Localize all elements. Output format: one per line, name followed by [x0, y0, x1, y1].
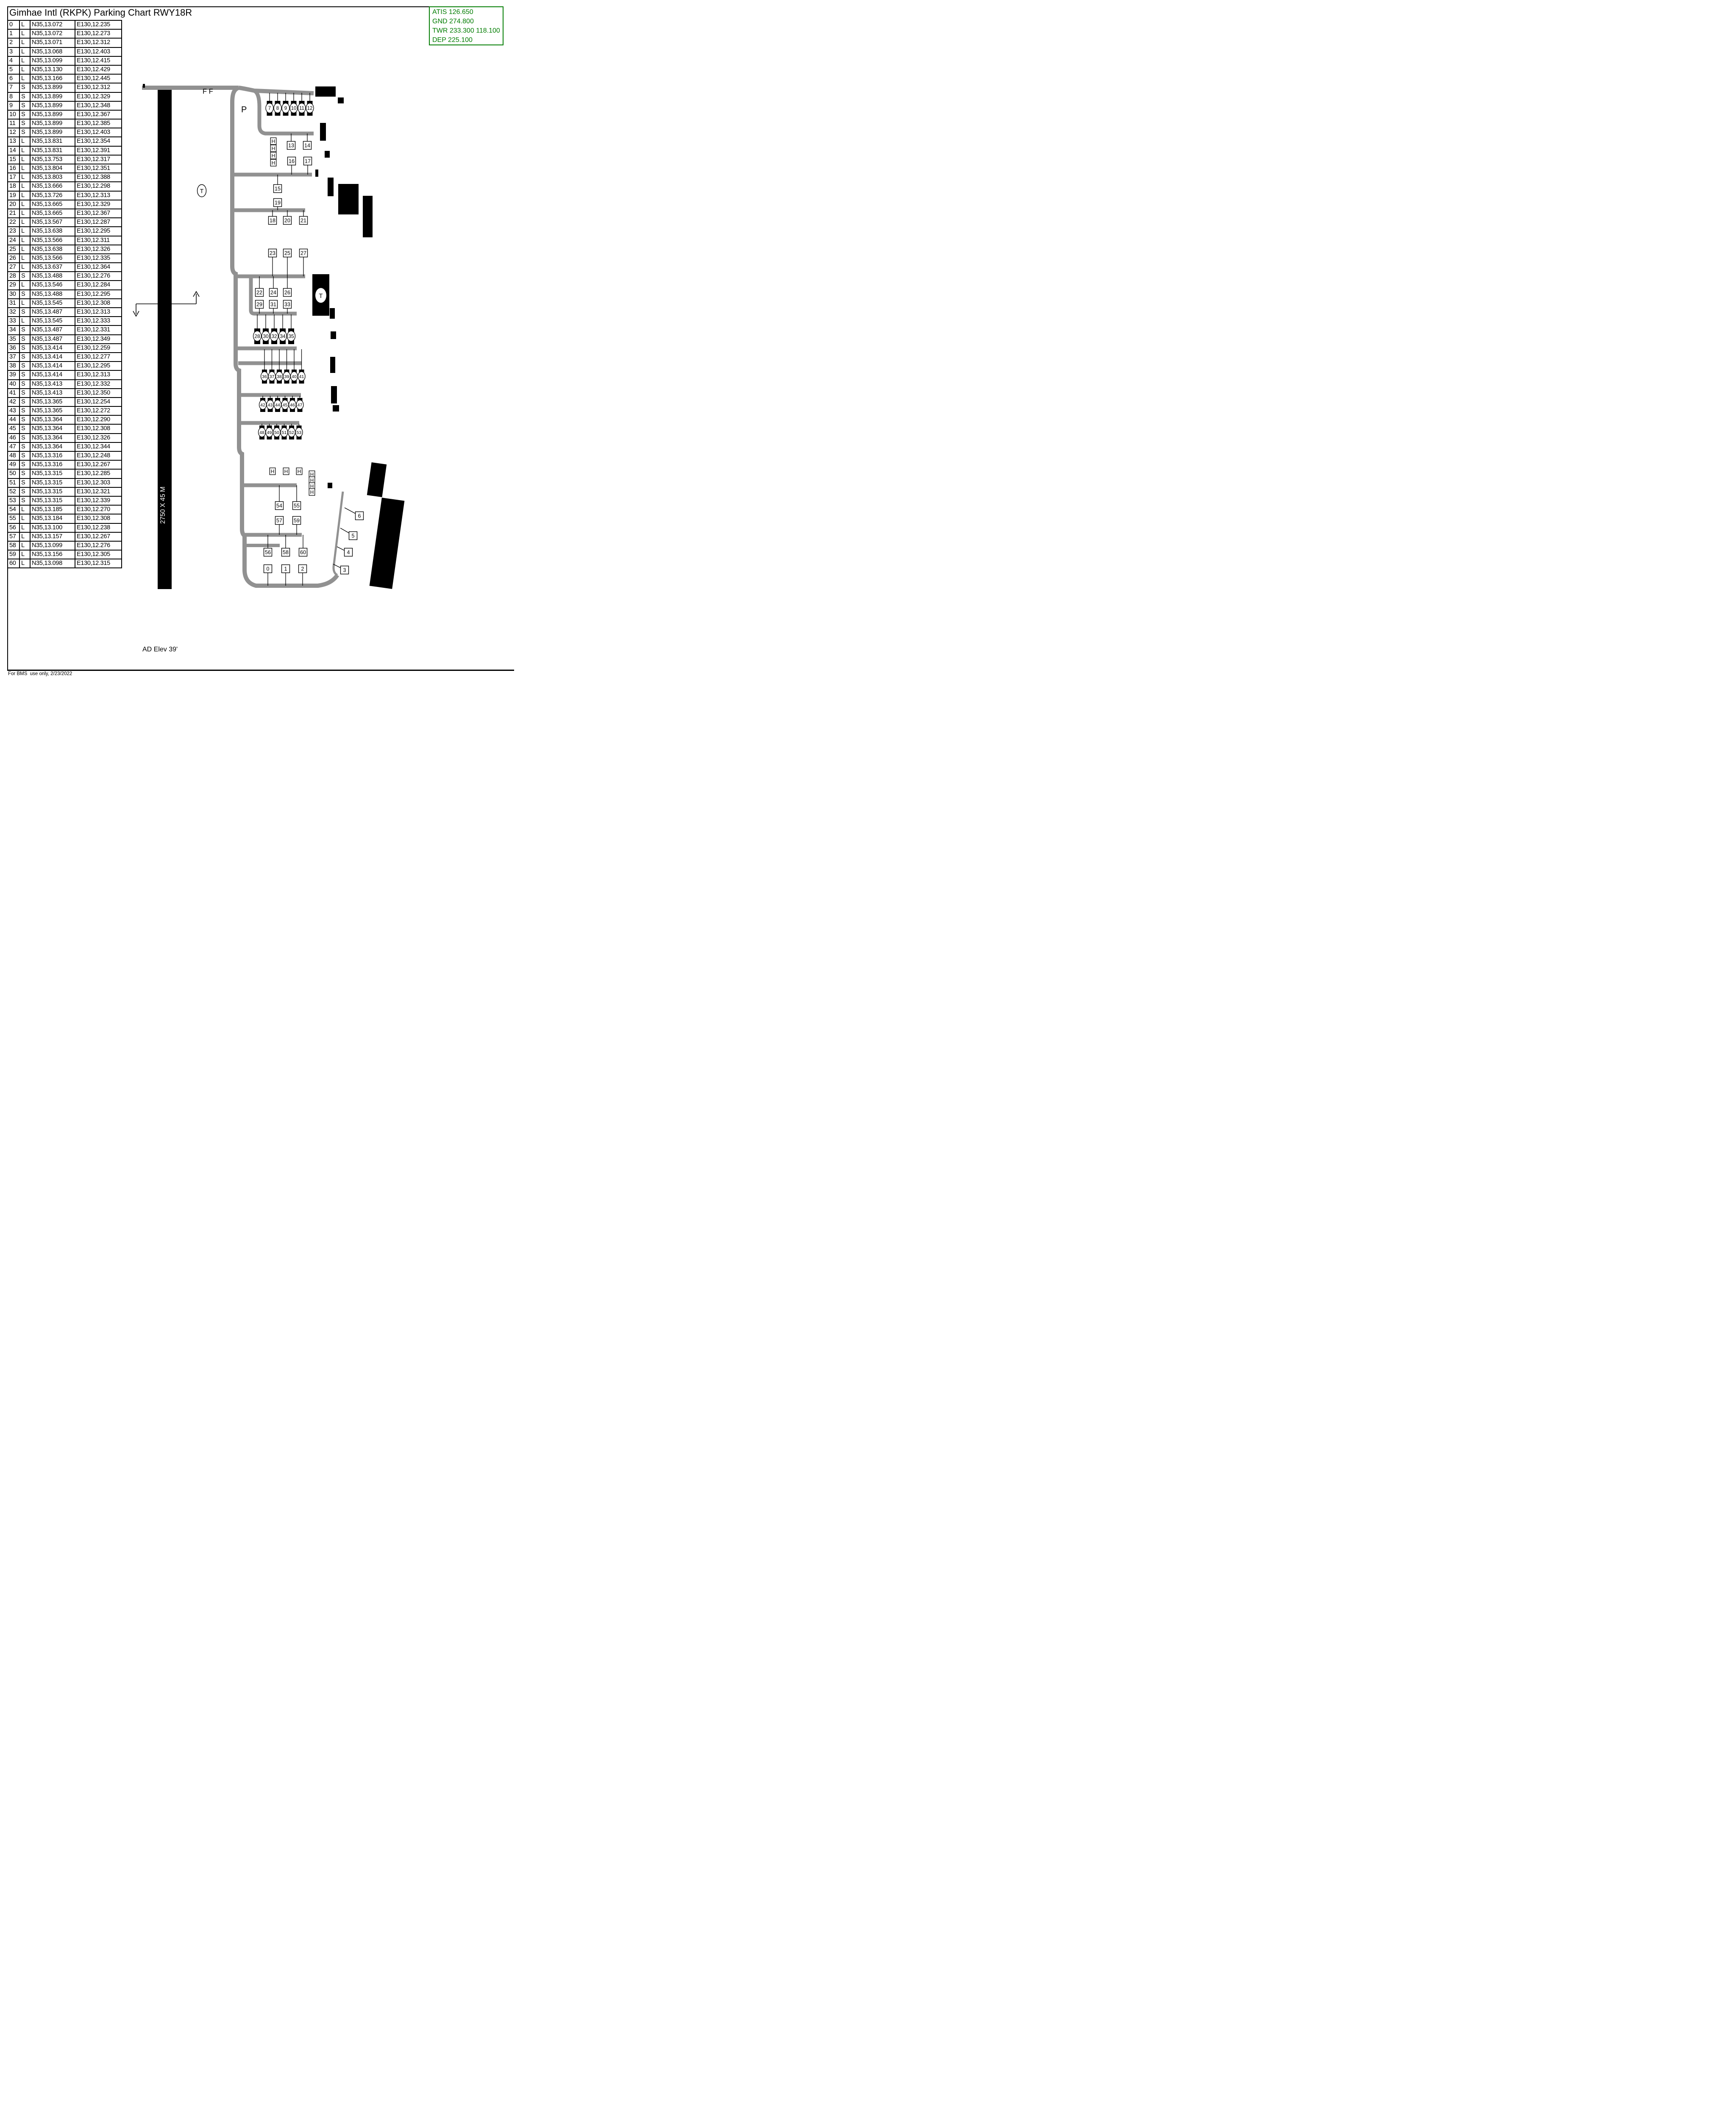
stand-box-label: 17 — [305, 159, 311, 164]
stand-circle-label: 36 — [262, 374, 267, 379]
stand-box-label: 16 — [289, 159, 295, 164]
stand-box-label: 3 — [343, 567, 346, 573]
taxiway-tick — [143, 84, 145, 88]
taxiway-f-label: F F — [203, 88, 213, 95]
helipad-label: H — [272, 160, 275, 166]
stand-circle-label: 53 — [297, 430, 302, 435]
building — [370, 498, 405, 589]
stand-box-label: 24 — [270, 290, 276, 296]
stand-box-label: 23 — [270, 250, 275, 256]
runway-dimensions-label: 2750 X 45 M — [159, 487, 167, 524]
stand-circle-label: 47 — [298, 403, 303, 408]
helipad-label: H — [310, 483, 314, 489]
helipad-label: H — [272, 138, 275, 144]
parking-chart-page: Gimhae Intl (RKPK) Parking Chart RWY18R … — [0, 0, 521, 677]
stand-circle-label: 34 — [280, 333, 286, 339]
stand-circle-label: 30 — [263, 333, 269, 339]
stand-box-label: 59 — [294, 518, 300, 524]
stand-box-label: 1 — [284, 566, 287, 572]
stand-box-label: 56 — [265, 550, 271, 556]
stand-box-label: 33 — [284, 302, 290, 308]
stand-box-label: 15 — [275, 186, 281, 192]
stand-box-label: 0 — [267, 566, 270, 572]
stand-box-label: 54 — [276, 503, 282, 509]
stand-box-label: 60 — [300, 550, 306, 556]
helipad-label: H — [298, 468, 301, 474]
stand-box-label: 13 — [288, 143, 294, 149]
stand-circle-label: 35 — [288, 333, 294, 339]
stand-box-label: 19 — [275, 200, 281, 206]
terminal-label-left: T — [200, 188, 204, 195]
stand-box-label: 55 — [294, 503, 300, 509]
diagonal-taxiway — [334, 492, 343, 575]
stand-leader — [340, 528, 349, 533]
stand-circle-label: 11 — [299, 106, 304, 111]
stand-circle-label: 10 — [291, 106, 297, 111]
stand-circle-label: 7 — [268, 106, 271, 111]
stand-box-label: 14 — [304, 143, 310, 149]
building — [331, 386, 337, 403]
stand-box-label: 31 — [270, 302, 276, 308]
helipad-label: H — [271, 468, 275, 474]
stand-circle-label: 41 — [299, 374, 304, 379]
stand-circle-label: 44 — [275, 403, 280, 408]
building — [367, 462, 387, 497]
footer-note: For BMS use only, 2/23/2022 — [8, 671, 72, 676]
stand-leader — [337, 547, 345, 551]
helipad-label: H — [272, 153, 275, 159]
stand-circle-label: 46 — [290, 403, 295, 408]
airport-diagram: 7891011122830323435363738394041424344454… — [0, 0, 521, 677]
building — [330, 308, 335, 319]
helipad-label: H — [272, 145, 275, 151]
building — [328, 483, 332, 488]
building — [325, 151, 330, 158]
stand-box-label: 21 — [300, 218, 306, 224]
stand-circle-label: 12 — [307, 106, 313, 111]
terminal-label-right: T — [319, 292, 323, 300]
stand-circle-label: 39 — [284, 374, 289, 379]
building — [328, 178, 334, 196]
stand-box-label: 58 — [283, 550, 289, 556]
building — [338, 184, 359, 214]
stand-circle-label: 42 — [260, 403, 265, 408]
stand-box-label: 20 — [284, 218, 290, 224]
stand-circle-label: 28 — [254, 333, 260, 339]
stand-box-label: 6 — [358, 513, 361, 519]
stand-circle-label: 37 — [270, 374, 275, 379]
stand-circle-label: 9 — [284, 106, 287, 111]
stand-box-label: 25 — [284, 250, 290, 256]
building — [315, 86, 336, 97]
stand-circle-label: 8 — [276, 106, 279, 111]
aerodrome-elevation-label: AD Elev 39' — [142, 646, 178, 653]
building — [333, 405, 339, 412]
building — [320, 123, 326, 141]
helipad-label: H — [284, 468, 288, 474]
building — [330, 357, 335, 373]
building — [331, 331, 336, 339]
stand-circle-label: 40 — [292, 374, 297, 379]
stand-box-label: 26 — [284, 290, 290, 296]
stand-circle-label: 49 — [267, 430, 272, 435]
building — [315, 170, 318, 177]
building — [338, 97, 344, 103]
stand-circle-label: 32 — [271, 333, 277, 339]
page-bottom-rule — [7, 670, 514, 671]
helipad-label: H — [310, 477, 314, 483]
building — [363, 196, 373, 237]
stand-box-label: 5 — [352, 533, 355, 539]
stand-box-label: 27 — [300, 250, 306, 256]
stand-box-label: 22 — [256, 290, 262, 296]
stand-circle-label: 38 — [277, 374, 282, 379]
stand-circle-label: 45 — [283, 403, 288, 408]
taxiway-network — [142, 88, 343, 586]
helipad-label: H — [310, 489, 314, 495]
stand-box-label: 57 — [276, 518, 282, 524]
apron-label: P — [241, 105, 247, 114]
stand-circle-label: 48 — [259, 430, 264, 435]
stand-circle-label: 43 — [268, 403, 273, 408]
stand-box-label: 18 — [270, 218, 275, 224]
stand-box-label: 2 — [301, 566, 304, 572]
stand-circle-label: 51 — [282, 430, 287, 435]
stand-box-label: 4 — [347, 550, 350, 556]
stand-leader — [345, 508, 356, 514]
stand-circle-label: 50 — [274, 430, 279, 435]
helipad-label: H — [310, 471, 314, 477]
stand-box-label: 29 — [256, 302, 262, 308]
stand-circle-label: 52 — [289, 430, 294, 435]
